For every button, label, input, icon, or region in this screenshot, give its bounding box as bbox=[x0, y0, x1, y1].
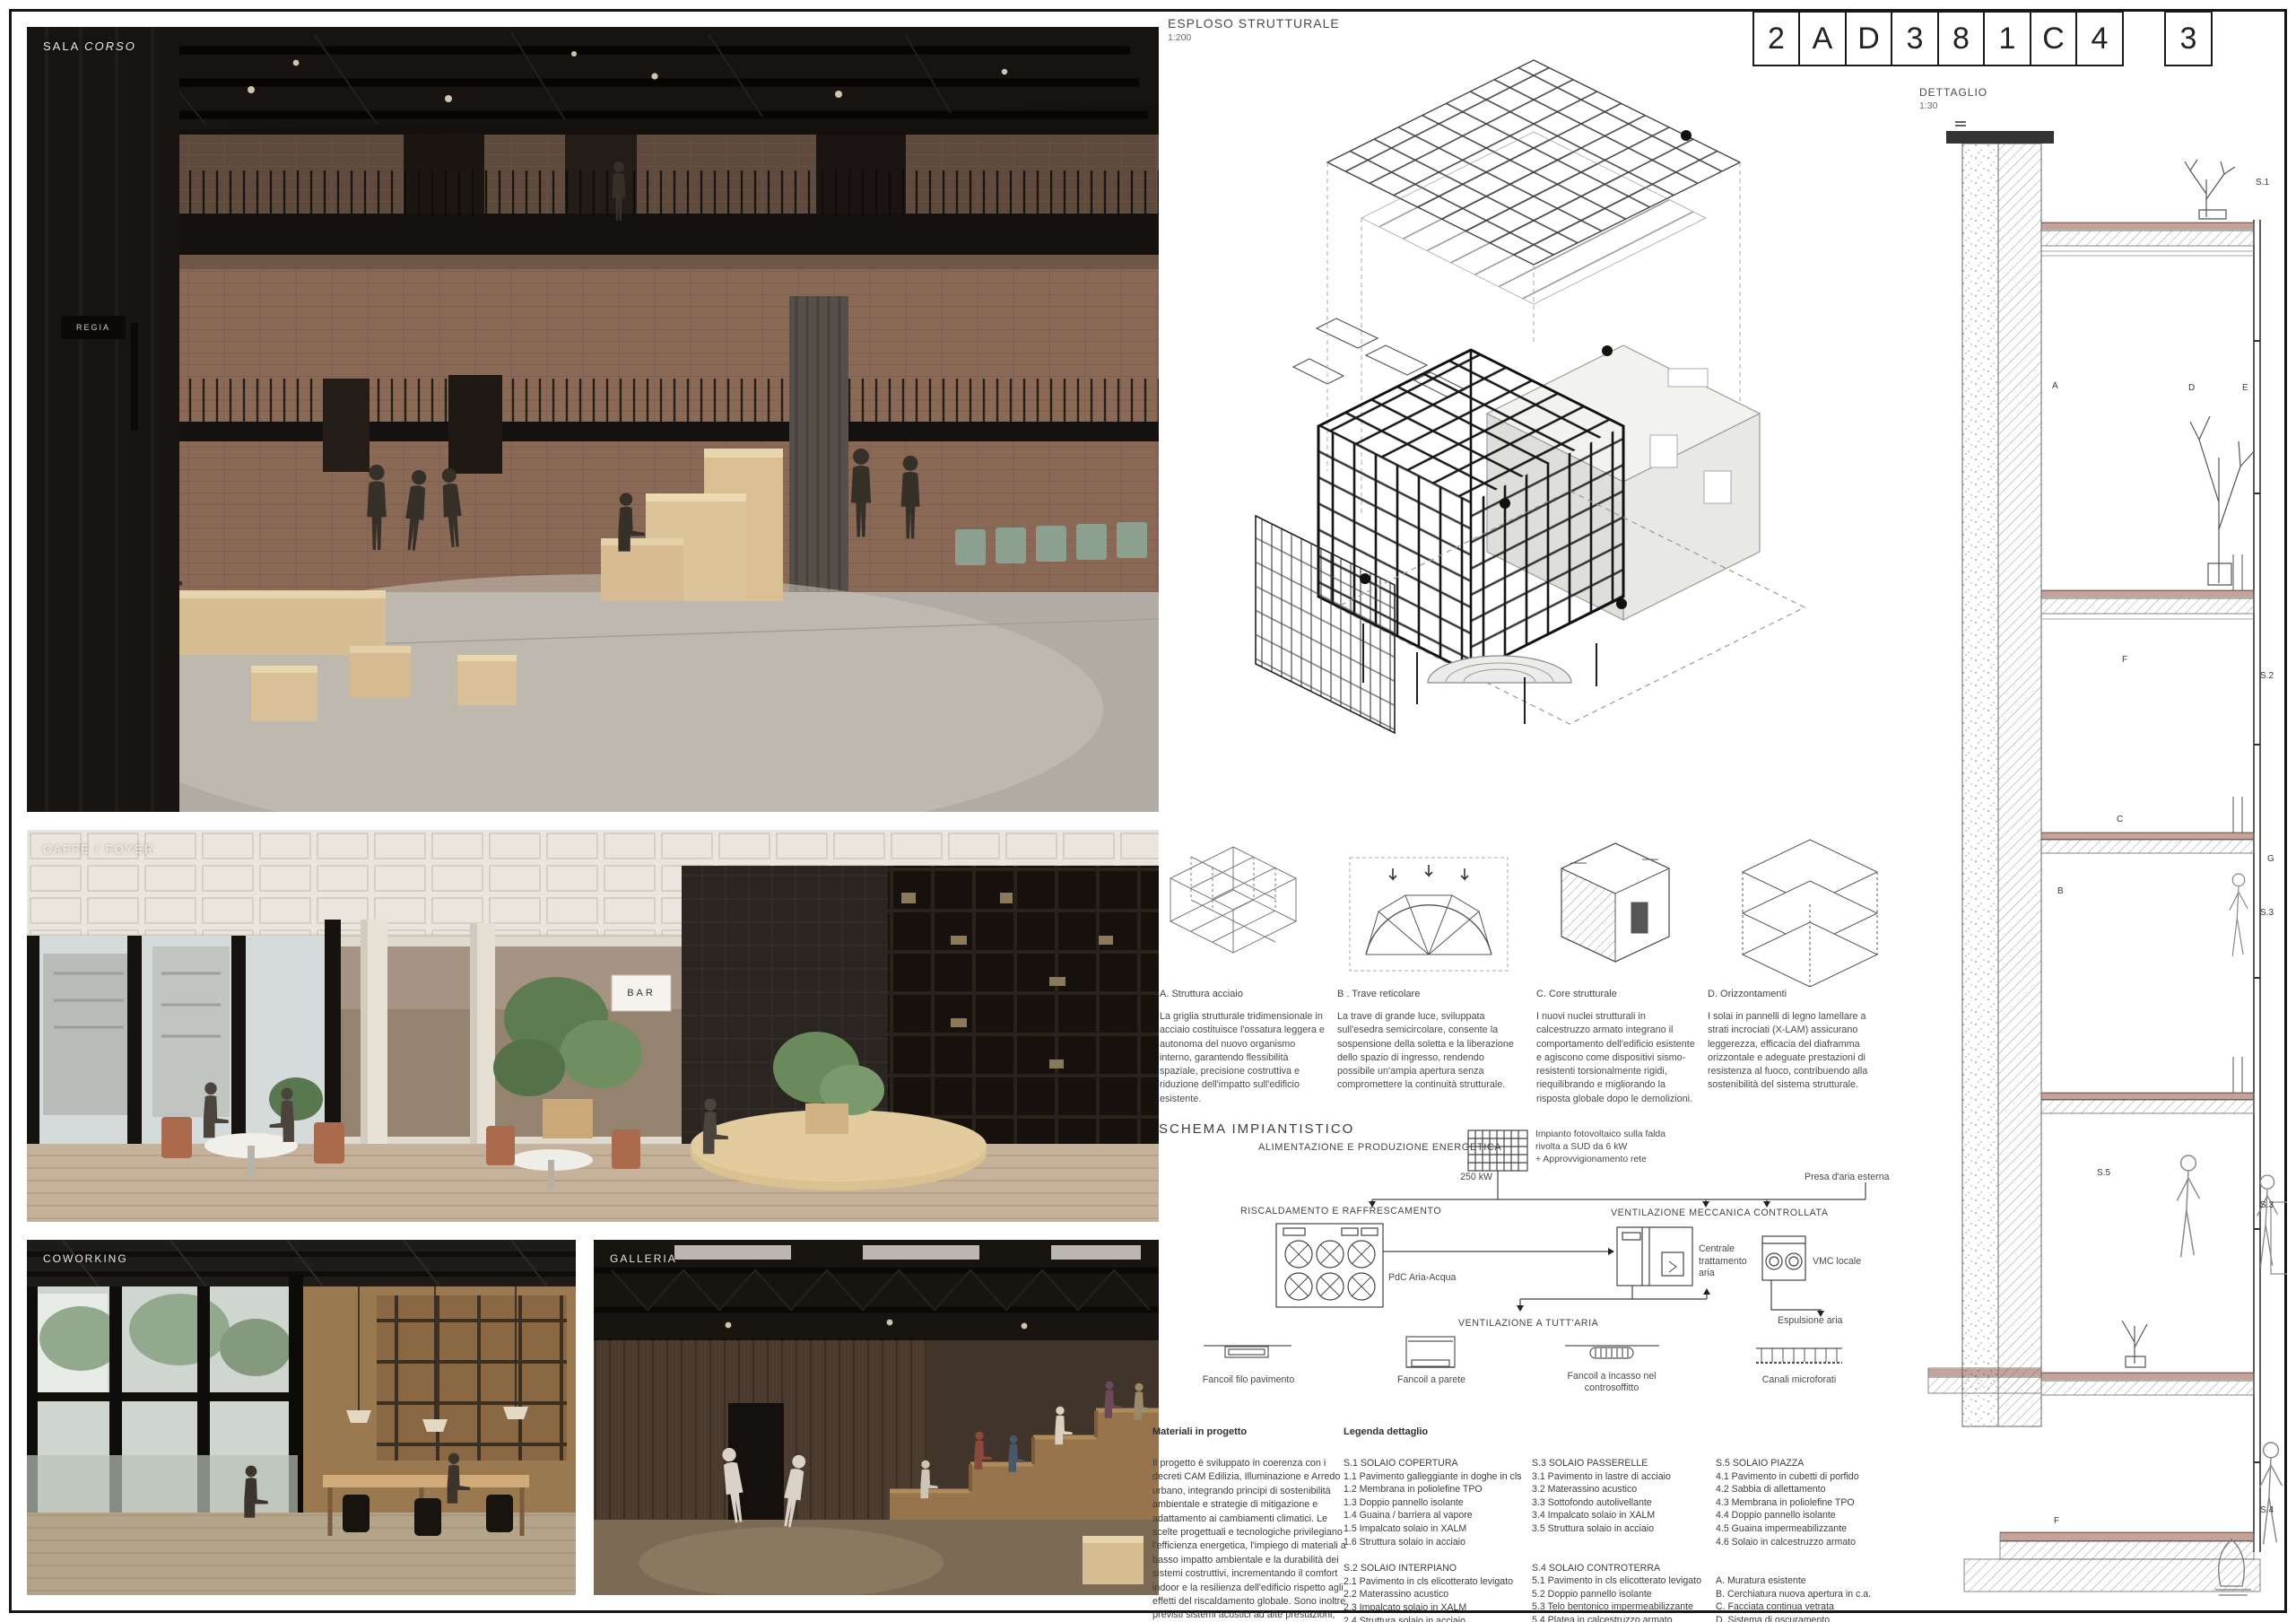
materiali-title: Materiali in progetto bbox=[1152, 1426, 1350, 1437]
code-cell-last: 3 bbox=[2164, 11, 2213, 66]
detail-marker: S.4 bbox=[2260, 1505, 2274, 1515]
code-cell: 8 bbox=[1937, 11, 1986, 66]
detail-marker: A bbox=[2052, 381, 2058, 391]
legenda-col-3: S.5 SOLAIO PIAZZA 4.1 Pavimento in cubet… bbox=[1716, 1426, 1909, 1622]
legend-item: 3.2 Materassino acustico bbox=[1532, 1483, 1716, 1496]
note-text: I nuovi nuclei strutturali in calcestruz… bbox=[1536, 1010, 1700, 1106]
legend-item: 4.2 Sabbia di allettamento bbox=[1716, 1483, 1909, 1496]
legend-heading: S.4 SOLAIO CONTROTERRA bbox=[1532, 1562, 1716, 1575]
legend-item: 4.1 Pavimento in cubetti di porfido bbox=[1716, 1470, 1909, 1484]
legend-item: 2.3 Impalcato solaio in XALM bbox=[1344, 1601, 1532, 1615]
render-label-coworking: COWORKING bbox=[43, 1252, 128, 1265]
vmc-title: VENTILAZIONE MECCANICA CONTROLLATA bbox=[1611, 1208, 1829, 1218]
legend-item: 1.2 Membrana in poliolefine TPO bbox=[1344, 1483, 1532, 1496]
legend-item: 4.6 Solaio in calcestruzzo armato bbox=[1716, 1536, 1909, 1549]
render-label-caffe: CAFFÈ / FOYER bbox=[43, 842, 154, 856]
detail-marker: E bbox=[2242, 383, 2248, 393]
detail-marker: S.1 bbox=[2256, 178, 2269, 187]
code-cell: C bbox=[2030, 11, 2078, 66]
legend-item: 5.2 Doppio pannello isolante bbox=[1532, 1588, 1716, 1601]
vmc-locale-label: VMC locale bbox=[1813, 1256, 1861, 1267]
detail-section-art bbox=[1910, 117, 2287, 1606]
legend-heading: S.1 SOLAIO COPERTURA bbox=[1344, 1457, 1532, 1470]
legend-item: 3.1 Pavimento in lastre di acciaio bbox=[1532, 1470, 1716, 1484]
pv-note: Impianto fotovoltaico sulla falda rivolt… bbox=[1535, 1129, 1665, 1166]
terminal-1-label: Fancoil filo pavimento bbox=[1191, 1374, 1306, 1385]
presa-aria-label: Presa d'aria esterna bbox=[1805, 1172, 1889, 1182]
pdc-label: PdC Aria-Acqua bbox=[1388, 1272, 1456, 1283]
legend-items: 1.1 Pavimento galleggiante in doghe in c… bbox=[1344, 1470, 1532, 1549]
esploso-header: ESPLOSO STRUTTURALE 1:200 bbox=[1168, 16, 1340, 43]
legend-items: 5.1 Pavimento in cls elicotterato leviga… bbox=[1532, 1574, 1716, 1622]
legend-group-s3: S.3 SOLAIO PASSERELLE 3.1 Pavimento in l… bbox=[1532, 1457, 1716, 1536]
legend-item: 3.5 Struttura solaio in acciaio bbox=[1532, 1522, 1716, 1536]
alimentazione-label: ALIMENTAZIONE E PRODUZIONE ENERGETICA bbox=[1258, 1142, 1501, 1153]
render-coworking: COWORKING bbox=[27, 1240, 576, 1595]
note-label: A. Struttura acciaio bbox=[1160, 989, 1328, 999]
terminal-2-label: Fancoil a parete bbox=[1375, 1374, 1488, 1385]
legenda-title: Legenda dettaglio bbox=[1344, 1426, 1532, 1437]
terminal-3-label: Fancoil a incasso nel controsoffitto bbox=[1550, 1371, 1674, 1394]
render-label-galleria: GALLERIA bbox=[610, 1252, 677, 1265]
note-text: I solai in pannelli di legno lamellare a… bbox=[1708, 1010, 1887, 1093]
legend-item: 1.6 Struttura solaio in acciaio bbox=[1344, 1536, 1532, 1549]
legend-item: 1.4 Guaina / barriera al vapore bbox=[1344, 1509, 1532, 1522]
legend-item: 1.5 Impalcato solaio in XALM bbox=[1344, 1522, 1532, 1536]
esploso-title: ESPLOSO STRUTTURALE bbox=[1168, 16, 1340, 31]
detail-marker: S.3 bbox=[2260, 908, 2274, 918]
legend-item: A. Muratura esistente bbox=[1716, 1574, 1909, 1588]
legend-heading: S.3 SOLAIO PASSERELLE bbox=[1532, 1457, 1716, 1470]
schema-impiantistico: SCHEMA IMPIANTISTICO ALIMENTAZIONE E PRO… bbox=[1157, 1120, 1915, 1416]
legend-item: 5.1 Pavimento in cls elicotterato leviga… bbox=[1532, 1574, 1716, 1588]
presentation-board: REGIA SALA CORSO bbox=[0, 0, 2296, 1622]
materiali-in-progetto: Materiali in progetto Il progetto è svil… bbox=[1152, 1426, 1350, 1622]
legend-items: 4.1 Pavimento in cubetti di porfido4.2 S… bbox=[1716, 1470, 1909, 1549]
legend-item: 4.5 Guaina impermeabilizzante bbox=[1716, 1522, 1909, 1536]
sala-render-art bbox=[27, 27, 1159, 812]
note-text: La griglia strutturale tridimensionale i… bbox=[1160, 1010, 1328, 1106]
coworking-render-art bbox=[27, 1240, 576, 1595]
detail-marker: D bbox=[2188, 383, 2195, 393]
render-galleria: GALLERIA bbox=[594, 1240, 1159, 1595]
legend-item: D. Sistema di oscuramento bbox=[1716, 1614, 1909, 1622]
note-core-strutturale: C. Core strutturale I nuovi nuclei strut… bbox=[1536, 989, 1700, 1106]
legend-group-s1: S.1 SOLAIO COPERTURA 1.1 Pavimento galle… bbox=[1344, 1457, 1532, 1548]
note-trave-reticolare: B . Trave reticolare La trave di grande … bbox=[1337, 989, 1524, 1093]
detail-marker: F bbox=[2122, 655, 2127, 665]
bar-sign-text: BAR bbox=[627, 988, 656, 998]
note-orizzontamenti: D. Orizzontamenti I solai in pannelli di… bbox=[1708, 989, 1887, 1093]
render-sala-corso: REGIA SALA CORSO bbox=[27, 27, 1159, 812]
legend-group-s5: S.5 SOLAIO PIAZZA 4.1 Pavimento in cubet… bbox=[1716, 1457, 1909, 1548]
esploso-drawing bbox=[1202, 49, 1901, 830]
detail-marker: G bbox=[2267, 854, 2274, 864]
note-struttura-acciaio: A. Struttura acciaio La griglia struttur… bbox=[1160, 989, 1328, 1106]
riscaldamento-label: RISCALDAMENTO E RAFFRESCAMENTO bbox=[1240, 1206, 1441, 1216]
legenda-col-2: S.3 SOLAIO PASSERELLE 3.1 Pavimento in l… bbox=[1532, 1426, 1716, 1622]
legend-item: 3.4 Impalcato solaio in XALM bbox=[1532, 1509, 1716, 1522]
detail-section: S.1 A D E F S.2 C G B S.3 S.5 S.3 F S.4 bbox=[1910, 117, 2287, 1606]
detail-marker: B bbox=[2057, 886, 2064, 896]
note-text: La trave di grande luce, sviluppata sull… bbox=[1337, 1010, 1524, 1093]
note-label: C. Core strutturale bbox=[1536, 989, 1700, 999]
terminal-4-label: Canali microforati bbox=[1740, 1374, 1858, 1385]
detail-marker: S.5 bbox=[2097, 1168, 2110, 1178]
legend-heading: S.5 SOLAIO PIAZZA bbox=[1716, 1457, 1909, 1470]
legenda-col-1: Legenda dettaglio S.1 SOLAIO COPERTURA 1… bbox=[1344, 1426, 1532, 1622]
legend-group-s4: S.4 SOLAIO CONTROTERRA 5.1 Pavimento in … bbox=[1532, 1562, 1716, 1622]
legend-item: 1.3 Doppio pannello isolante bbox=[1344, 1496, 1532, 1510]
centrale-label: Centrale trattamento aria bbox=[1699, 1243, 1747, 1280]
dettaglio-title: DETTAGLIO bbox=[1919, 86, 1987, 99]
tuttaria-label: VENTILAZIONE A TUTT'ARIA bbox=[1458, 1318, 1598, 1329]
detail-marker: C bbox=[2117, 815, 2123, 824]
legend-item: 5.4 Platea in calcestruzzo armato bbox=[1532, 1614, 1716, 1622]
code-gap bbox=[2122, 11, 2167, 63]
legend-item: 5.3 Telo bentonico impermeabilizzante bbox=[1532, 1600, 1716, 1614]
power-label: 250 kW bbox=[1453, 1172, 1492, 1182]
esploso-scale: 1:200 bbox=[1168, 32, 1340, 43]
bar-sign: BAR bbox=[612, 975, 671, 1011]
schema-title: SCHEMA IMPIANTISTICO bbox=[1159, 1121, 1354, 1137]
regia-sign-text: REGIA bbox=[76, 323, 110, 332]
legend-item: 4.3 Membrana in poliolefine TPO bbox=[1716, 1496, 1909, 1510]
legend-group-letters: A. Muratura esistenteB. Cerchiatura nuov… bbox=[1716, 1574, 1909, 1622]
legend-item: C. Facciata continua vetrata bbox=[1716, 1600, 1909, 1614]
legend-group-s2: S.2 SOLAIO INTERPIANO 2.1 Pavimento in c… bbox=[1344, 1562, 1532, 1622]
code-cell: 4 bbox=[2075, 11, 2124, 66]
dettaglio-scale: 1:30 bbox=[1919, 100, 1987, 111]
legend-item: 2.2 Materassino acustico bbox=[1344, 1588, 1532, 1601]
detail-marker: S.3 bbox=[2260, 1200, 2274, 1210]
note-label: D. Orizzontamenti bbox=[1708, 989, 1887, 999]
espulsione-label: Espulsione aria bbox=[1778, 1315, 1842, 1326]
legend-item: 2.1 Pavimento in cls elicotterato leviga… bbox=[1344, 1575, 1532, 1589]
legend-item: 4.4 Doppio pannello isolante bbox=[1716, 1509, 1909, 1522]
code-cell: 1 bbox=[1983, 11, 2031, 66]
galleria-render-art bbox=[594, 1240, 1159, 1595]
detail-marker: F bbox=[2054, 1516, 2059, 1526]
dettaglio-header: DETTAGLIO 1:30 bbox=[1919, 86, 1987, 111]
legend-item: B. Cerchiatura nuova apertura in c.a. bbox=[1716, 1588, 1909, 1601]
regia-sign: REGIA bbox=[61, 316, 126, 339]
detail-marker: S.2 bbox=[2260, 671, 2274, 681]
legend-items: 2.1 Pavimento in cls elicotterato leviga… bbox=[1344, 1575, 1532, 1622]
legend-heading: S.2 SOLAIO INTERPIANO bbox=[1344, 1562, 1532, 1575]
legend-items: 3.1 Pavimento in lastre di acciaio3.2 Ma… bbox=[1532, 1470, 1716, 1536]
structure-mini-diagrams bbox=[1160, 834, 1904, 987]
caffe-render-art bbox=[27, 830, 1159, 1222]
legend-item: 2.4 Struttura solaio in acciaio bbox=[1344, 1615, 1532, 1622]
legend-item: 3.3 Sottofondo autolivellante bbox=[1532, 1496, 1716, 1510]
materiali-text: Il progetto è sviluppato in coerenza con… bbox=[1152, 1457, 1350, 1622]
legend-item: 1.1 Pavimento galleggiante in doghe in c… bbox=[1344, 1470, 1532, 1484]
render-label-sala: SALA CORSO bbox=[43, 39, 136, 53]
legend-items: A. Muratura esistenteB. Cerchiatura nuov… bbox=[1716, 1574, 1909, 1622]
render-caffe-foyer: BAR CAFFÈ / FOYER bbox=[27, 830, 1159, 1222]
note-label: B . Trave reticolare bbox=[1337, 989, 1524, 999]
